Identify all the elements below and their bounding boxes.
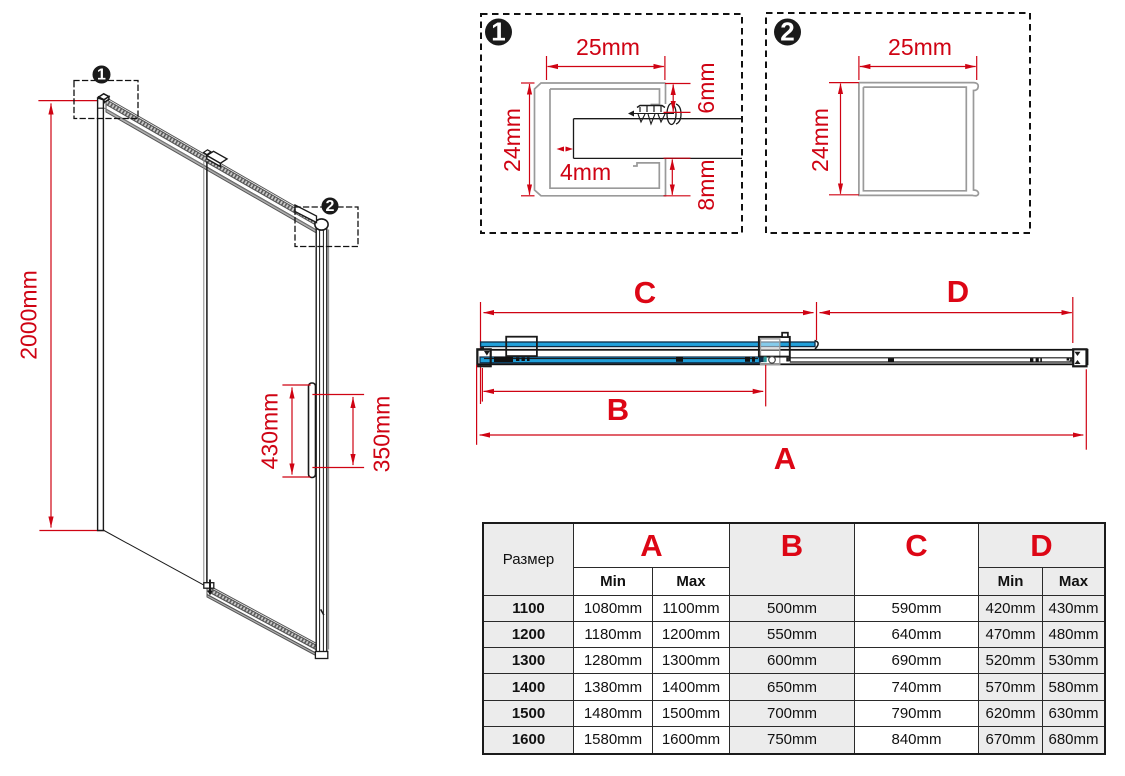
svg-text:430mm: 430mm bbox=[257, 393, 283, 470]
svg-text:2: 2 bbox=[326, 198, 335, 215]
svg-text:8mm: 8mm bbox=[693, 159, 719, 210]
svg-text:B: B bbox=[607, 392, 629, 427]
svg-text:24mm: 24mm bbox=[499, 108, 525, 172]
svg-text:C: C bbox=[634, 275, 656, 310]
svg-text:1: 1 bbox=[97, 67, 106, 84]
svg-text:2000mm: 2000mm bbox=[16, 270, 42, 359]
svg-text:24mm: 24mm bbox=[807, 108, 833, 172]
svg-text:350mm: 350mm bbox=[369, 396, 395, 473]
svg-text:6mm: 6mm bbox=[693, 62, 719, 113]
svg-text:25mm: 25mm bbox=[888, 34, 952, 60]
svg-text:1: 1 bbox=[491, 16, 505, 46]
svg-text:2: 2 bbox=[780, 16, 794, 46]
svg-text:A: A bbox=[774, 441, 796, 476]
svg-text:D: D bbox=[947, 274, 969, 309]
svg-text:4mm: 4mm bbox=[560, 159, 611, 185]
svg-text:25mm: 25mm bbox=[576, 34, 640, 60]
